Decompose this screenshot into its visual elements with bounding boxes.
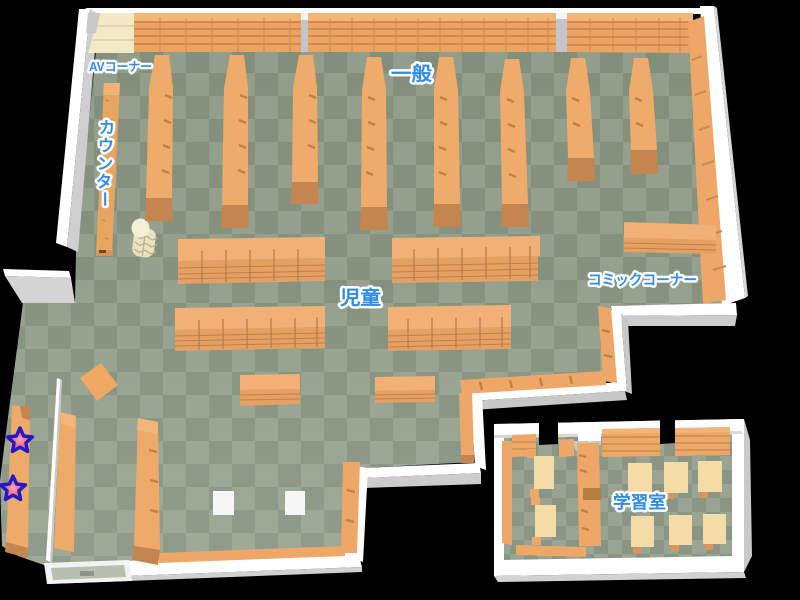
svg-text:ウ: ウ — [98, 137, 114, 155]
svg-text:ー: ー — [95, 191, 112, 207]
svg-text:学習室: 学習室 — [613, 492, 666, 512]
svg-text:カ: カ — [99, 119, 115, 137]
svg-text:タ: タ — [96, 173, 112, 191]
svg-text:児童: 児童 — [339, 286, 381, 309]
svg-text:AVコーナー: AVコーナー — [89, 60, 152, 74]
svg-text:一般: 一般 — [391, 62, 432, 85]
svg-text:ン: ン — [97, 156, 113, 173]
svg-text:コミックコーナー: コミックコーナー — [588, 272, 697, 289]
